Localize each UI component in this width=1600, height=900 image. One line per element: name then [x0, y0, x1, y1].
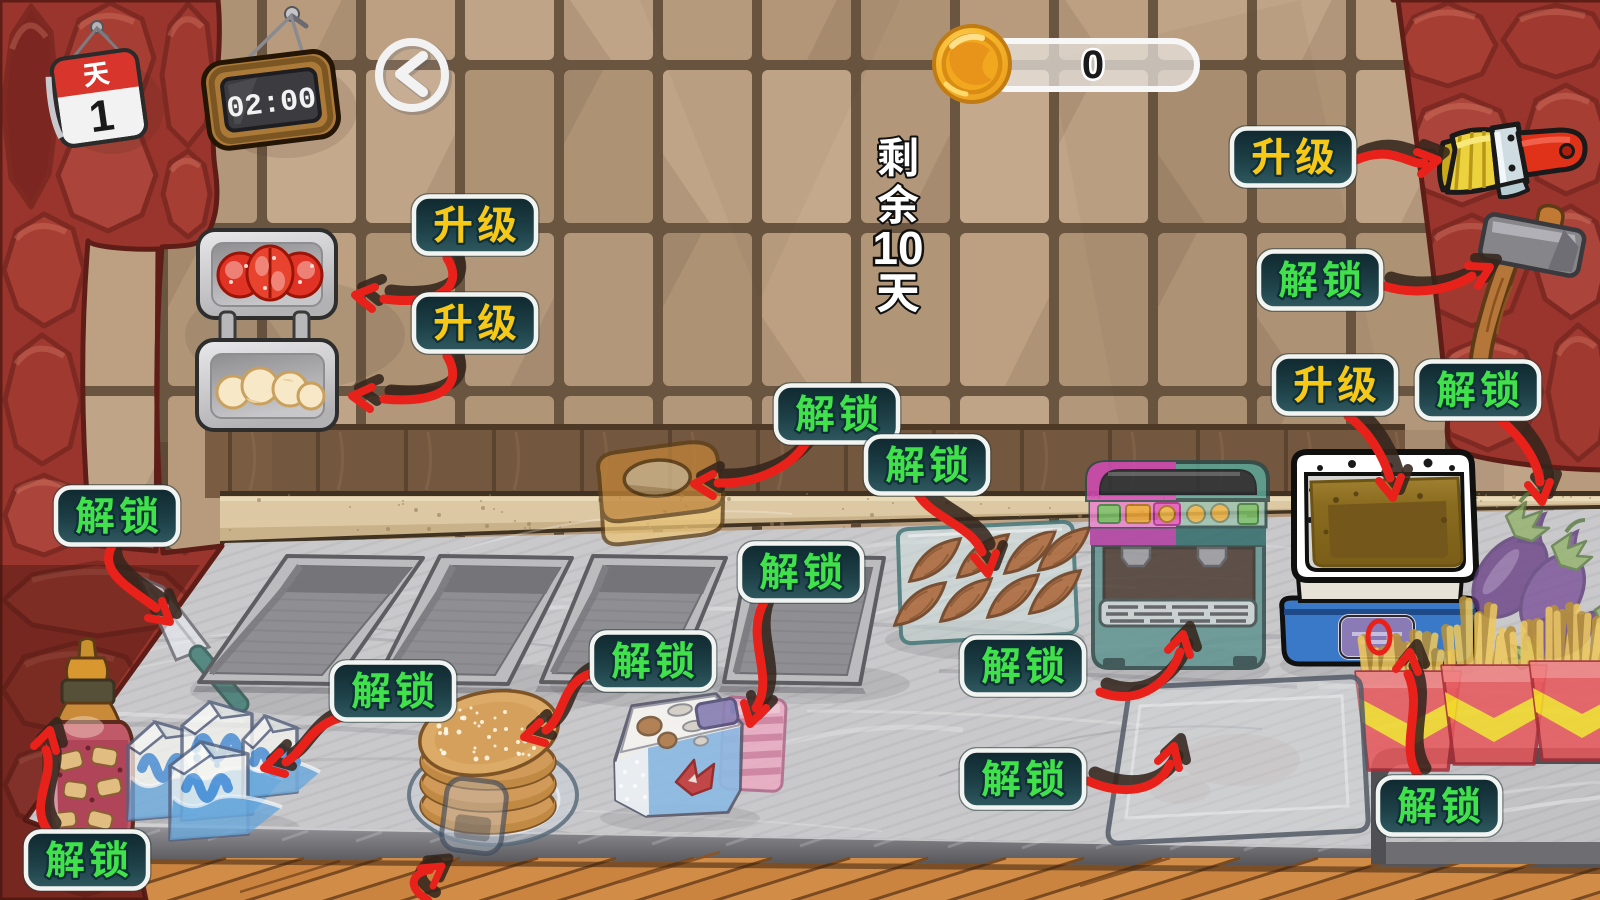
- svg-text:0: 0: [1082, 43, 1104, 87]
- svg-text:10: 10: [872, 222, 923, 274]
